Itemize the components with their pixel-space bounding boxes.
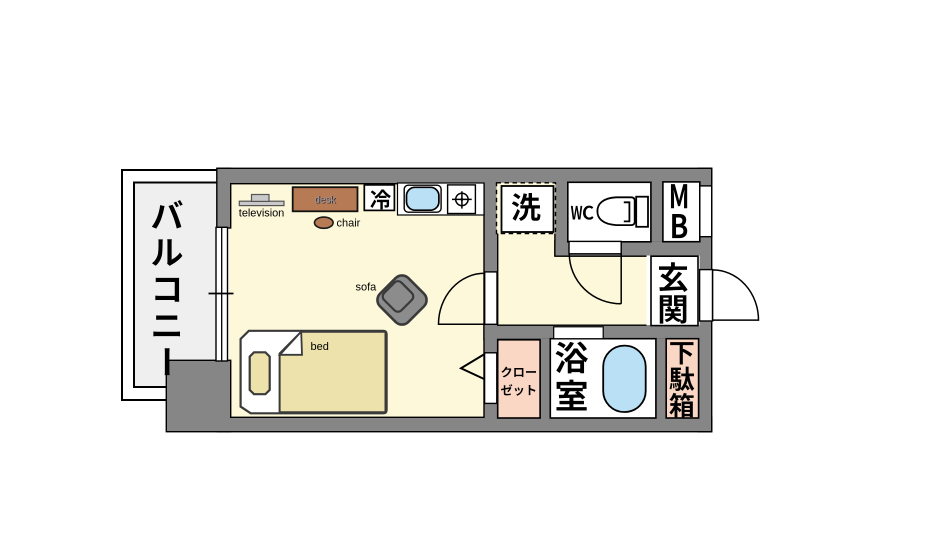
svg-text:bed: bed	[311, 341, 329, 353]
svg-text:chair: chair	[337, 217, 361, 229]
svg-text:desk: desk	[315, 195, 337, 206]
svg-text:sofa: sofa	[356, 282, 378, 294]
svg-text:television: television	[239, 208, 284, 220]
